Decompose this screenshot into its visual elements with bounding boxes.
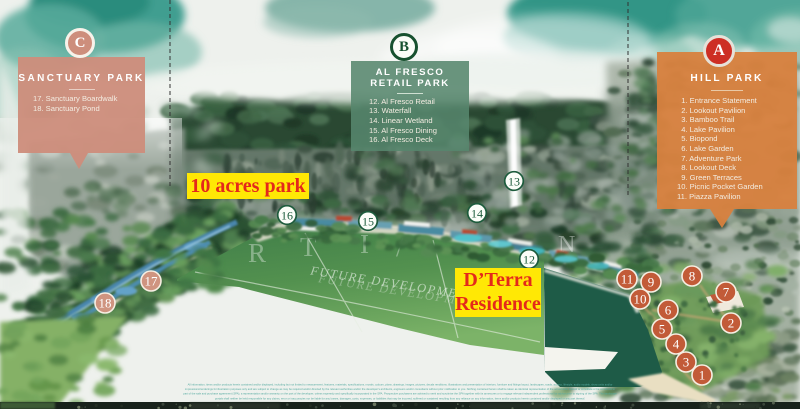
svg-text:8: 8 — [689, 269, 696, 284]
svg-text:All information, items and/or: All information, items and/or products h… — [188, 383, 613, 387]
svg-text:5: 5 — [659, 322, 666, 337]
svg-text:16: 16 — [281, 208, 293, 222]
svg-text:12: 12 — [523, 252, 535, 266]
svg-text:7: 7 — [723, 285, 730, 300]
svg-text:14: 14 — [471, 206, 483, 220]
svg-text:1: 1 — [699, 368, 706, 383]
svg-text:11: 11 — [621, 272, 634, 287]
svg-text:9: 9 — [648, 275, 655, 290]
svg-text:2: 2 — [728, 316, 735, 331]
svg-text:10: 10 — [634, 292, 647, 307]
svg-text:3: 3 — [683, 355, 690, 370]
svg-text:15: 15 — [362, 214, 374, 228]
svg-text:part of the sale and purchase: part of the sale and purchase agreement … — [183, 392, 617, 396]
svg-text:R: R — [248, 238, 266, 268]
svg-text:portals shall neither be held: portals shall neither be held responsibl… — [215, 396, 586, 400]
svg-text:13: 13 — [508, 174, 520, 188]
svg-text:impressions/renderings for ill: impressions/renderings for illustration … — [185, 387, 615, 391]
svg-text:6: 6 — [665, 303, 672, 318]
svg-text:17: 17 — [145, 274, 159, 289]
svg-text:18: 18 — [99, 296, 112, 311]
svg-text:4: 4 — [673, 337, 680, 352]
